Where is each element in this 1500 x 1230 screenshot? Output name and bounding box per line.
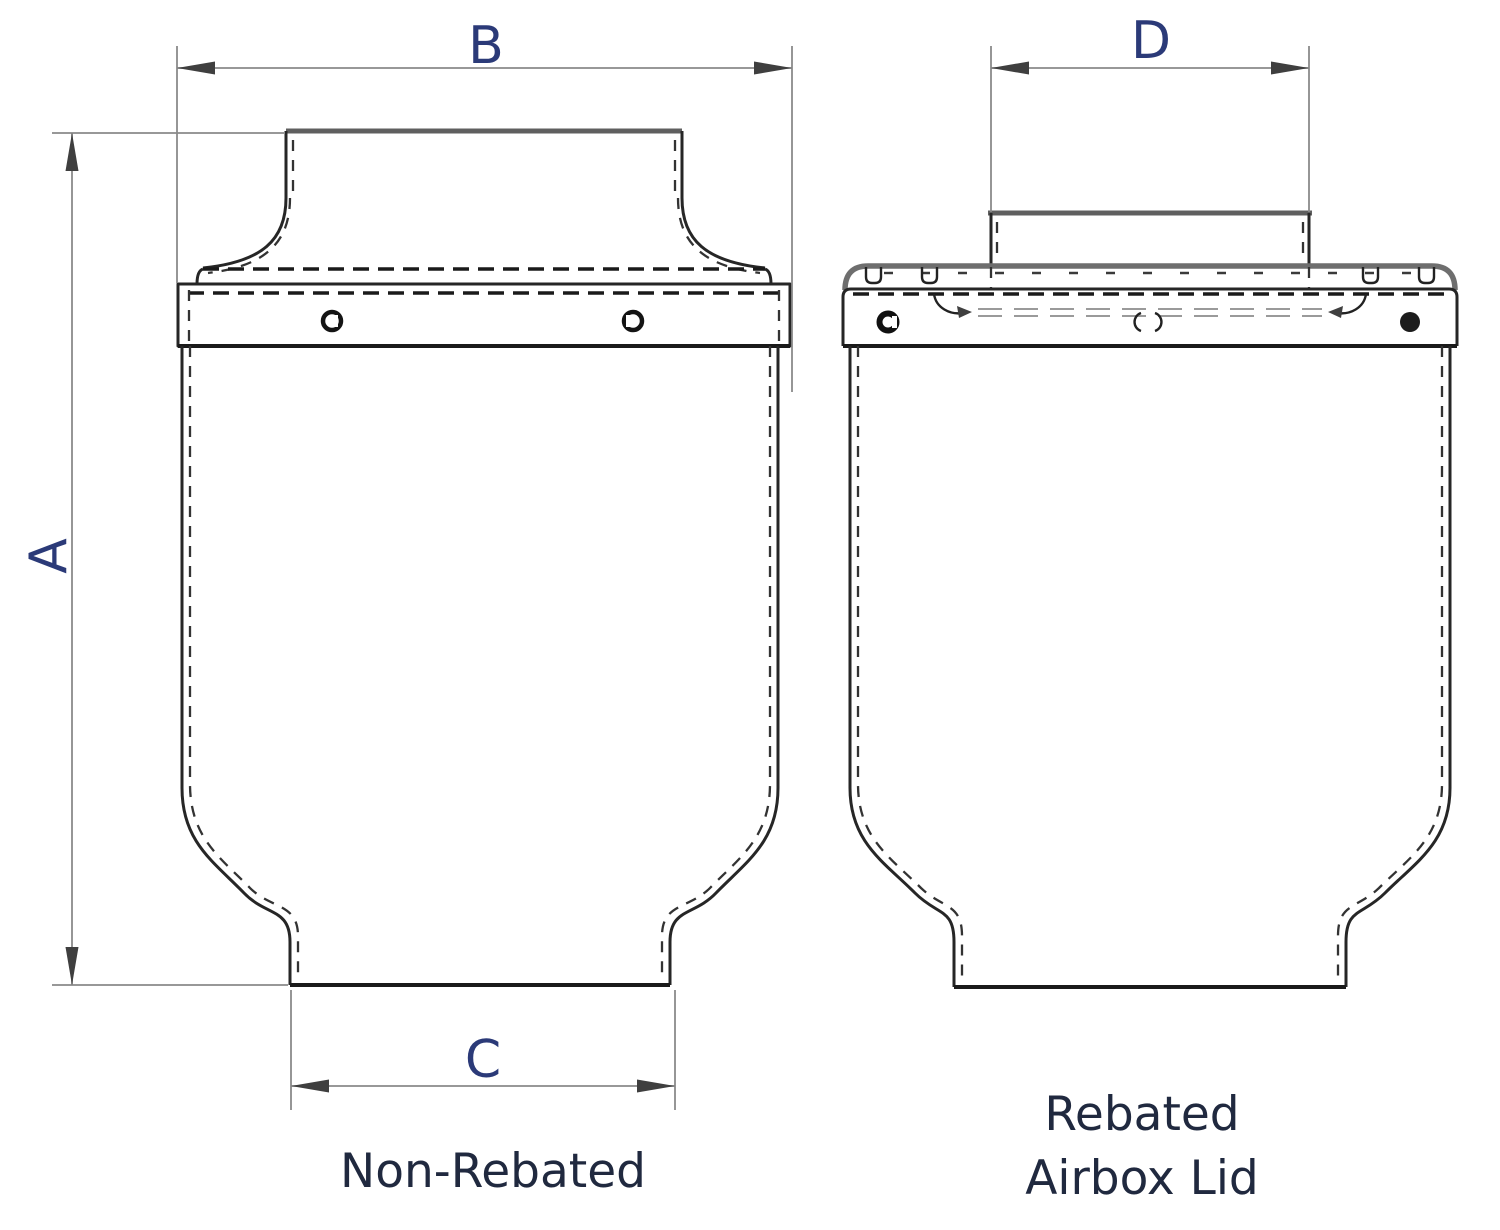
caption-rebated-line1: Rebated bbox=[1044, 1087, 1239, 1142]
bolt-left-slot bbox=[892, 316, 897, 328]
center-ring-right-arc bbox=[1155, 313, 1161, 331]
lid-left-hook-tab bbox=[922, 267, 937, 283]
screw-hole-right-slot bbox=[626, 315, 630, 327]
flange-left-step bbox=[197, 269, 203, 284]
caption-non-rebated: Non-Rebated bbox=[340, 1144, 646, 1199]
neck-right-flare bbox=[682, 131, 765, 268]
dim-a-arrow-bottom bbox=[66, 947, 79, 985]
dim-a-label: A bbox=[19, 538, 79, 574]
dimension-c: C bbox=[291, 990, 675, 1110]
lid-left-ear-tab bbox=[866, 267, 881, 283]
figure-rebated bbox=[843, 213, 1457, 987]
latch-hook-right-tip bbox=[1328, 306, 1343, 318]
dim-d-arrow-left bbox=[991, 62, 1029, 75]
rebated-body-right-edge bbox=[1346, 346, 1450, 987]
dim-d-label: D bbox=[1131, 11, 1171, 71]
latch-hook-left-tip bbox=[957, 306, 972, 318]
body-left-edge bbox=[182, 346, 290, 985]
body-right-hidden-line bbox=[662, 346, 770, 981]
screw-hole-left bbox=[323, 312, 341, 330]
dim-c-label: C bbox=[465, 1030, 501, 1090]
dim-c-arrow-right bbox=[637, 1080, 675, 1093]
airbox-lid-technical-drawing: B A C Non-Rebated bbox=[0, 0, 1500, 1230]
dim-c-arrow-left bbox=[291, 1080, 329, 1093]
dim-a-arrow-top bbox=[66, 133, 79, 171]
lid-right-hook-tab bbox=[1363, 267, 1378, 283]
body-right-edge bbox=[670, 346, 778, 985]
dim-b-arrow-left bbox=[177, 62, 215, 75]
rebated-body-left-edge bbox=[850, 346, 954, 987]
dimension-b: B bbox=[177, 16, 792, 392]
caption-rebated-line2: Airbox Lid bbox=[1025, 1151, 1259, 1206]
lid-right-ear-tab bbox=[1419, 267, 1434, 283]
dim-b-arrow-right bbox=[754, 62, 792, 75]
drawing-sheet: B A C Non-Rebated bbox=[0, 0, 1500, 1230]
neck-left-flare bbox=[203, 131, 286, 268]
dimension-a: A bbox=[19, 133, 288, 985]
dim-b-label: B bbox=[468, 16, 504, 76]
bolt-right bbox=[1400, 312, 1420, 332]
dim-d-arrow-right bbox=[1271, 62, 1309, 75]
screw-hole-left-slot bbox=[334, 315, 338, 327]
figure-non-rebated bbox=[178, 131, 790, 985]
body-left-hidden-line bbox=[190, 346, 298, 981]
dimension-d: D bbox=[991, 11, 1309, 212]
flange-right-step bbox=[765, 269, 771, 284]
